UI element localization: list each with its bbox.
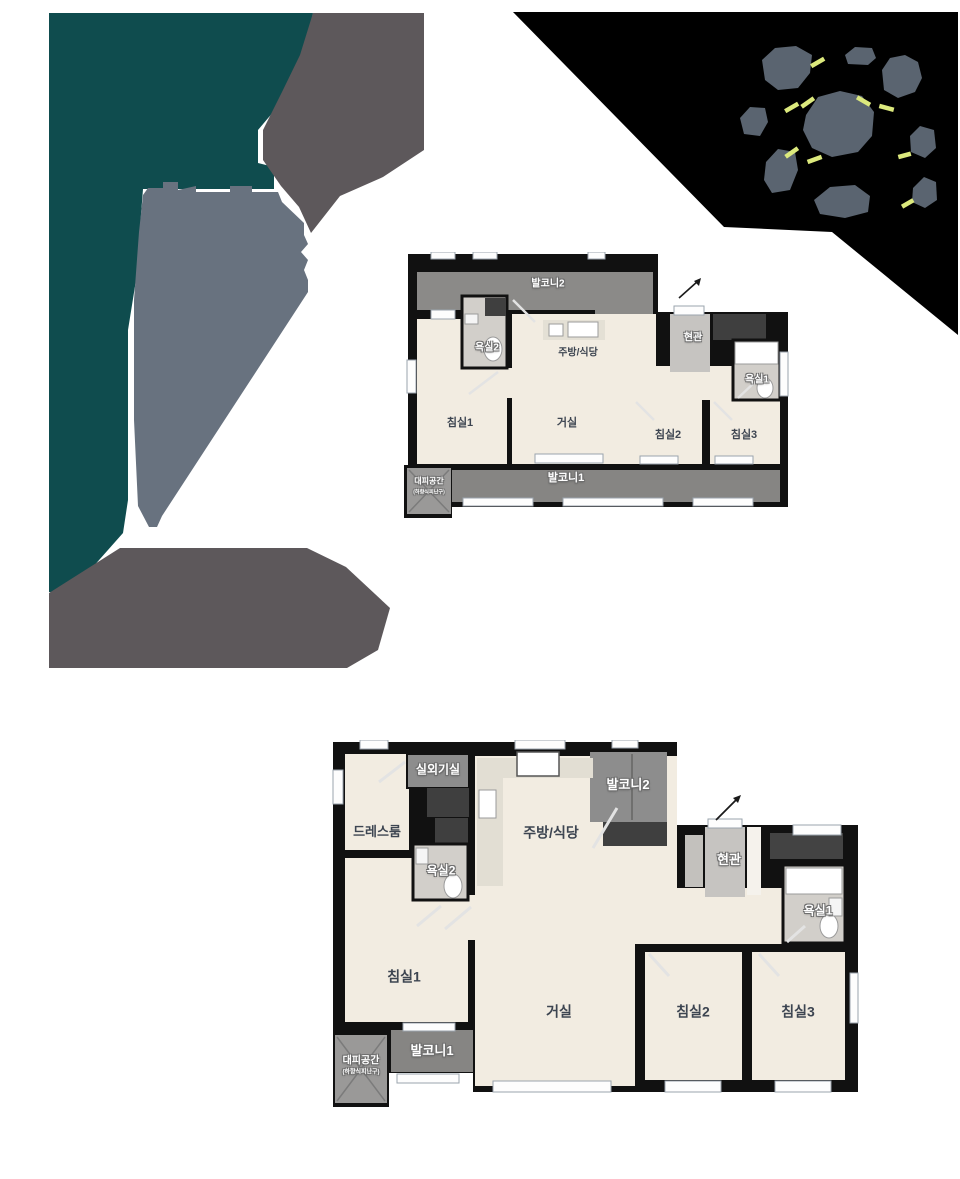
room-label-bedroom1: 침실1	[447, 417, 473, 429]
floor-plan-small-drawing	[403, 252, 797, 520]
slate-shape	[134, 182, 308, 527]
room-label-dressroom: 드레스룸	[353, 825, 401, 839]
entry-arrow-icon	[716, 795, 741, 820]
kitchen-counter	[543, 320, 605, 340]
room-label-evacuation-sub: (하향식피난구)	[413, 490, 445, 496]
room-label-balcony2: 발코니2	[531, 279, 564, 290]
gray-shape-lower	[49, 548, 390, 668]
room-label-bedroom2: 침실2	[676, 1004, 710, 1019]
room-label-bedroom3: 침실3	[781, 1004, 815, 1019]
room-label-bath2: 욕실2	[475, 343, 499, 354]
room-label-kitchen: 주방/식당	[523, 825, 578, 840]
room-label-outdoor-unit: 실외기실	[416, 763, 460, 776]
room-label-living: 거실	[557, 417, 577, 429]
room-label-evacuation: 대피공간	[343, 1056, 380, 1067]
room-label-balcony1: 발코니1	[548, 472, 584, 484]
entry-arrow-icon	[679, 278, 701, 298]
room-label-living: 거실	[546, 1004, 572, 1019]
room-label-kitchen: 주방/식당	[558, 348, 598, 359]
floor-plan-small: 발코니2 욕실2 주방/식당 현관 욕실1 침실1 거실 침실2 침실3 발코니…	[403, 252, 797, 520]
room-label-bedroom3: 침실3	[731, 429, 757, 441]
floor-plan-large: 실외기실 드레스룸 욕실2 주방/식당 발코니2 현관 욕실1 침실1 거실 침…	[331, 740, 860, 1110]
room-label-evacuation: 대피공간	[414, 478, 443, 487]
room-label-bath1: 욕실1	[745, 375, 769, 386]
room-label-bedroom1: 침실1	[387, 969, 421, 984]
page-canvas: 발코니2 욕실2 주방/식당 현관 욕실1 침실1 거실 침실2 침실3 발코니…	[0, 0, 960, 1179]
room-label-entrance: 현관	[684, 333, 702, 344]
room-label-entrance: 현관	[717, 853, 741, 867]
room-label-evacuation-sub: (하향식피난구)	[342, 1070, 379, 1077]
room-label-balcony2: 발코니2	[606, 778, 649, 792]
room-label-bath1: 욕실1	[804, 904, 833, 917]
room-label-balcony1: 발코니1	[410, 1044, 453, 1058]
room-label-bedroom2: 침실2	[655, 429, 681, 441]
room-label-bath2: 욕실2	[427, 864, 456, 877]
